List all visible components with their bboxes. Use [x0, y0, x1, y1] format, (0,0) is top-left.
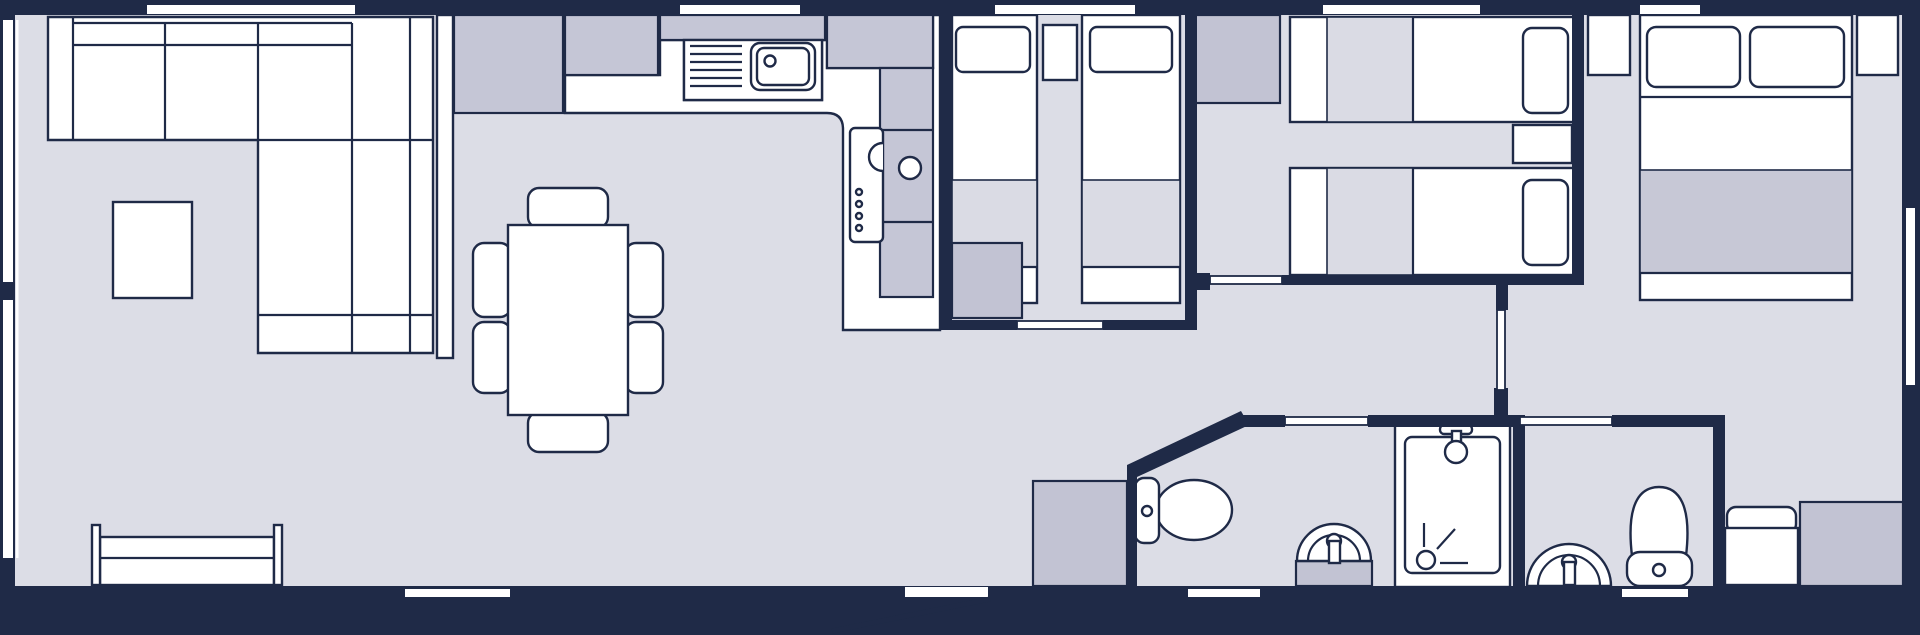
kitchen-counter-right-column	[880, 68, 933, 297]
dining-chair	[528, 412, 608, 452]
window	[147, 5, 355, 14]
wardrobe	[1800, 502, 1903, 586]
tap-icon	[765, 56, 776, 67]
window	[1323, 5, 1480, 14]
window	[1640, 5, 1700, 14]
flush-button-icon	[1142, 506, 1152, 516]
toilet	[1627, 487, 1692, 586]
shower-room-sliding-door	[1285, 417, 1368, 425]
shower-drain-icon	[1417, 551, 1435, 569]
single-bed	[1082, 15, 1180, 303]
ensuite-right-wall	[1713, 415, 1725, 600]
wall-stub	[1197, 273, 1210, 290]
toilet	[1135, 478, 1232, 543]
wardrobe	[952, 243, 1022, 318]
hob-burner-icon	[899, 157, 921, 179]
cooker-knob-icon	[856, 225, 862, 231]
coffee-table	[113, 202, 192, 298]
kitchen-tall-unit	[454, 15, 563, 113]
shower-head-icon	[1445, 441, 1467, 463]
dining-chair	[528, 188, 608, 228]
single-bed	[1290, 17, 1575, 122]
window	[995, 5, 1135, 14]
wall-bedroom2-master	[1572, 15, 1584, 285]
dining-chair	[473, 322, 511, 393]
wardrobe	[1193, 15, 1280, 103]
dining-table	[508, 225, 628, 415]
window	[1622, 589, 1688, 597]
ensuite-sliding-door	[1520, 417, 1612, 425]
shower-enclosure	[1395, 423, 1510, 587]
bench-post	[274, 525, 282, 585]
ensuite-top-wall	[1612, 415, 1725, 427]
kitchen-counter-corner	[827, 15, 933, 68]
master-door-post	[1496, 275, 1508, 310]
bedside-table	[1513, 125, 1572, 163]
pillow	[1523, 180, 1568, 265]
kitchen-counter-left	[565, 15, 658, 75]
pillow	[956, 27, 1030, 72]
window	[1188, 589, 1260, 597]
bedroom2-sliding-door	[1210, 276, 1282, 284]
bedroom1-sliding-door	[1017, 321, 1103, 329]
pillow	[1523, 28, 1568, 113]
storage-unit	[1033, 481, 1127, 586]
window	[680, 5, 800, 14]
dining-chair	[473, 243, 511, 317]
bench-post	[92, 525, 100, 585]
bathroom-top-wall	[1368, 415, 1517, 427]
dining-chair	[625, 322, 663, 393]
bedside-table	[1588, 15, 1630, 75]
room-divider-partition	[437, 15, 453, 358]
shower-room-left-wall	[1127, 465, 1137, 600]
bedside-table	[1043, 25, 1077, 80]
kitchen-counter-top-strip	[660, 15, 825, 40]
bedroom2-bottom-wall	[1282, 275, 1583, 285]
dining-chair	[625, 243, 663, 317]
flush-button-icon	[1653, 564, 1665, 576]
window-left-inner-frame	[16, 20, 19, 558]
toilet-bowl	[1156, 480, 1232, 540]
bathroom-top-wall	[1243, 415, 1285, 427]
bedroom1-bottom-wall	[1103, 320, 1185, 330]
ottoman-bench	[1725, 507, 1798, 585]
double-bed	[1640, 15, 1852, 300]
master-door-post	[1494, 388, 1508, 417]
master-bedroom-door	[1497, 310, 1505, 390]
pillow	[1090, 27, 1172, 72]
window-right	[1906, 208, 1915, 385]
pillow	[1647, 27, 1740, 87]
toilet-bowl	[1631, 487, 1688, 556]
window-left	[3, 300, 13, 558]
cooker-knob-icon	[856, 189, 862, 195]
wall-shower-ensuite	[1513, 415, 1525, 600]
vanity-base	[1296, 561, 1372, 586]
sink-basin-inner	[757, 48, 809, 85]
cooker-knob-icon	[856, 213, 862, 219]
single-bed	[1290, 168, 1575, 275]
hallway	[1033, 481, 1127, 586]
pillow	[1750, 27, 1844, 87]
bedside-table	[1857, 15, 1898, 75]
floor-plan	[0, 0, 1920, 635]
wall-kitchen-bedroom1	[940, 15, 952, 330]
window-left	[3, 20, 13, 282]
wall-bedroom1-bedroom2	[1185, 15, 1197, 330]
cooker-knob-icon	[856, 201, 862, 207]
kitchen-sink-unit	[684, 40, 822, 100]
window	[405, 589, 510, 597]
entrance-opening	[905, 587, 990, 597]
bedroom1-bottom-wall	[952, 320, 1017, 330]
bench-board	[100, 537, 274, 585]
